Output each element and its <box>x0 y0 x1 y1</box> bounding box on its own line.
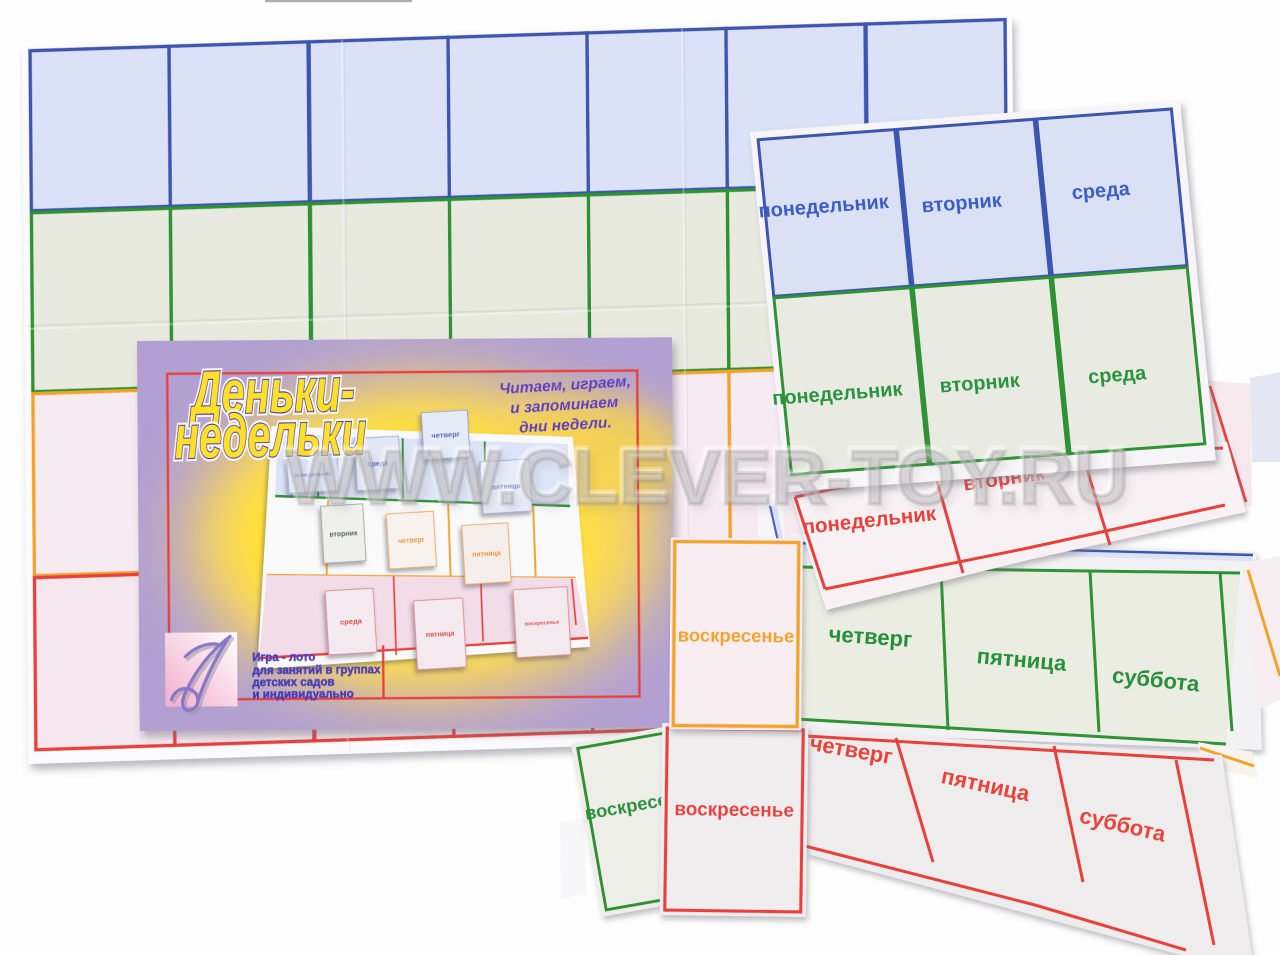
svg-text:WWW.CLEVER-TOY.RU: WWW.CLEVER-TOY.RU <box>286 436 1129 521</box>
svg-text:среда: среда <box>1071 178 1132 204</box>
svg-text:детских садов: детских садов <box>252 677 334 690</box>
svg-text:для занятий в группах: для занятий в группах <box>252 664 381 677</box>
svg-text:среда: среда <box>340 616 363 626</box>
svg-text:Игра - лото: Игра - лото <box>252 652 315 664</box>
svg-text:и индивидуально: и индивидуально <box>252 688 353 701</box>
svg-text:среда: среда <box>1087 362 1148 388</box>
svg-text:воскресенье: воскресенье <box>678 624 795 646</box>
svg-text:воскресенье: воскресенье <box>674 799 794 822</box>
